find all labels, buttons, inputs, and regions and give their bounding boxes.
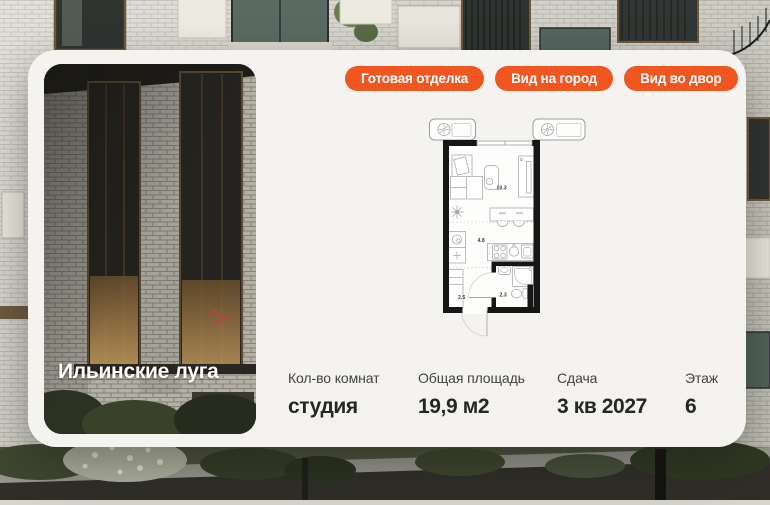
area-label-kitchen: 4.8 bbox=[478, 238, 485, 244]
project-name-label: Ильинские луга bbox=[58, 360, 219, 384]
spec-rooms-label: Кол-во комнат bbox=[288, 370, 379, 386]
spec-floor-label: Этаж bbox=[685, 370, 718, 386]
gallery-photo[interactable]: Ильинские луга bbox=[44, 64, 256, 434]
street-scene bbox=[0, 438, 770, 500]
badge-yard-view-button[interactable]: Вид во двор bbox=[624, 66, 737, 91]
spec-floor-value: 6 bbox=[685, 395, 718, 419]
spec-floor: Этаж 6 bbox=[685, 370, 718, 419]
spec-rooms: Кол-во комнат студия bbox=[288, 370, 379, 419]
area-label-main-room: 10.3 bbox=[497, 186, 507, 192]
badge-finish-button[interactable]: Готовая отделка bbox=[345, 66, 484, 91]
spec-completion-value: 3 кв 2027 bbox=[557, 395, 647, 419]
spec-completion: Сдача 3 кв 2027 bbox=[557, 370, 647, 419]
area-label-hallway: 2.5 bbox=[458, 295, 465, 301]
balcony-left bbox=[430, 119, 476, 140]
right-facade-details bbox=[744, 118, 770, 388]
spec-area: Общая площадь 19,9 м2 bbox=[418, 370, 525, 419]
spec-area-value: 19,9 м2 bbox=[418, 395, 525, 419]
spec-area-label: Общая площадь bbox=[418, 370, 525, 386]
window bbox=[477, 141, 532, 145]
badge-city-view-button[interactable]: Вид на город bbox=[495, 66, 613, 91]
spec-rooms-value: студия bbox=[288, 395, 379, 419]
ceiling-light-icon bbox=[451, 206, 464, 219]
property-card: Ильинские луга Готовая отделка Вид на го… bbox=[28, 50, 746, 447]
spec-completion-label: Сдача bbox=[557, 370, 647, 386]
feature-badges: Готовая отделка Вид на город Вид во двор bbox=[345, 66, 738, 91]
area-label-bathroom: 2.3 bbox=[500, 293, 507, 299]
balcony-right bbox=[533, 119, 585, 140]
floorplan-drawing: 10.3 4.8 2.5 2.3 bbox=[425, 116, 595, 356]
